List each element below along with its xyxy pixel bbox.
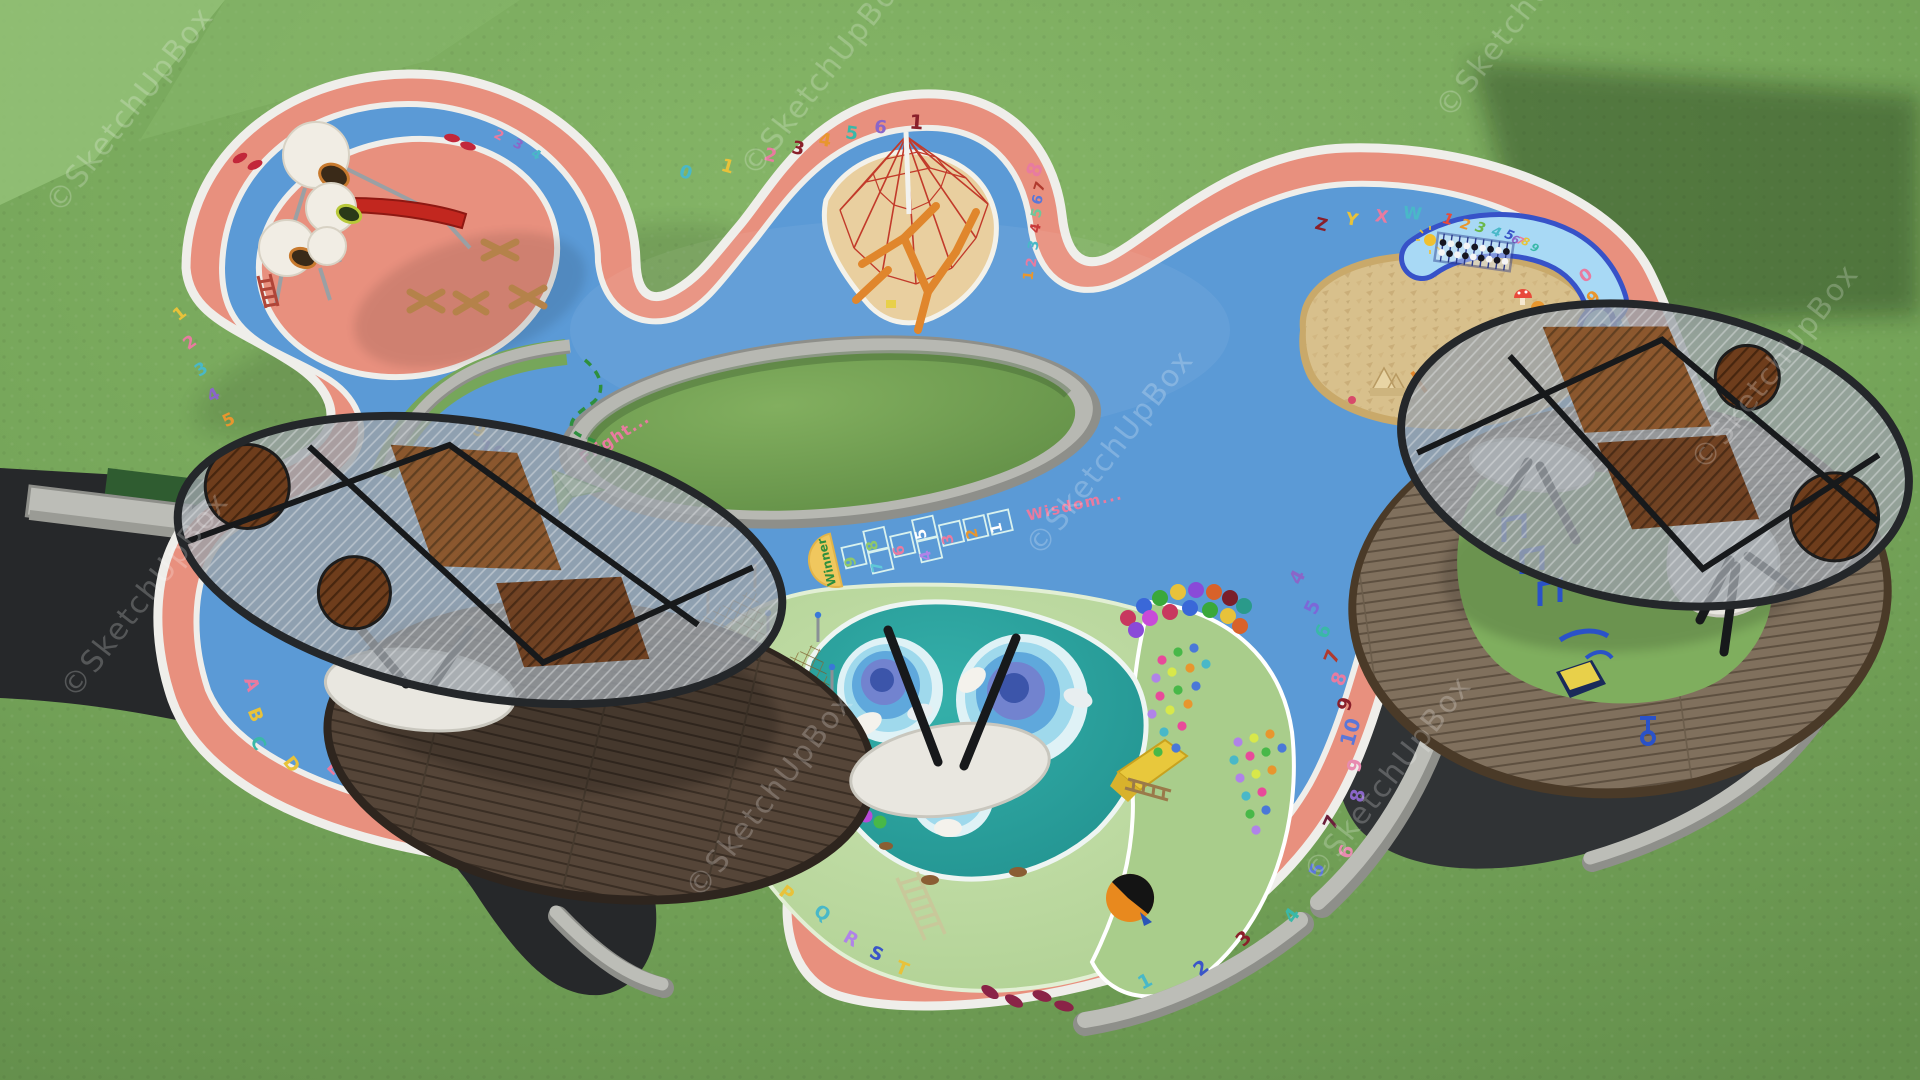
- marking-glyph: 1: [909, 110, 925, 135]
- decor-dot: [1202, 602, 1218, 618]
- decor-dot: [1222, 590, 1238, 606]
- decor-dot: [1241, 791, 1250, 800]
- decor-dot: [1251, 769, 1260, 778]
- decor-dot: [1236, 598, 1252, 614]
- decor-dot: [1191, 681, 1200, 690]
- marking-glyph: 1: [1021, 270, 1038, 281]
- decor-dot: [1233, 737, 1242, 746]
- decor-dot: [1261, 747, 1270, 756]
- decor-dot: [1201, 659, 1210, 668]
- marking-glyph: X: [1374, 206, 1390, 228]
- decor-dot: [1167, 667, 1176, 676]
- decor-dot: [1188, 582, 1204, 598]
- decor-dot: [1249, 733, 1258, 742]
- decor-dot: [1171, 743, 1180, 752]
- decor-dot: [1232, 618, 1248, 634]
- decor-dot: [1183, 699, 1192, 708]
- decor-dot: [1153, 747, 1162, 756]
- decor-dot: [874, 816, 887, 829]
- decor-dot: [829, 664, 835, 670]
- yellow-marker: [886, 300, 896, 308]
- marking-glyph: W: [1402, 203, 1423, 225]
- decor-dot: [1265, 729, 1274, 738]
- decor-dot: [1142, 610, 1158, 626]
- decor-dot: [1155, 691, 1164, 700]
- decor-dot: [1157, 655, 1166, 664]
- decor-dot: [1165, 705, 1174, 714]
- decor-dot: [1173, 685, 1182, 694]
- pod-sphere-4: [308, 227, 346, 265]
- decor-dot: [1151, 673, 1160, 682]
- decor-dot: [1177, 721, 1186, 730]
- decor-dot: [1245, 809, 1254, 818]
- decor-dot: [1277, 743, 1286, 752]
- pyramid-pole: [906, 132, 909, 214]
- decor-dot: [1185, 663, 1194, 672]
- decor-dot: [1159, 727, 1168, 736]
- decor-dot: [1152, 590, 1168, 606]
- decor-dot: [1162, 604, 1178, 620]
- marking-glyph: 6: [873, 116, 888, 138]
- decor-dot: [1173, 647, 1182, 656]
- decor-dot: [1267, 765, 1276, 774]
- decor-dot: [1235, 773, 1244, 782]
- decor-dot: [1229, 755, 1238, 764]
- decor-dot: [1182, 600, 1198, 616]
- playground-render: Flight...: [0, 0, 1920, 1080]
- decor-dot: [1128, 622, 1144, 638]
- decor-dot: [1170, 584, 1186, 600]
- decor-dot: [1147, 709, 1156, 718]
- decor-dot: [815, 612, 821, 618]
- decor-dot: [1251, 825, 1260, 834]
- decor-dot: [1257, 787, 1266, 796]
- decor-dot: [1189, 643, 1198, 652]
- decor-dot: [1206, 584, 1222, 600]
- scene-canvas: Flight...: [0, 0, 1920, 1080]
- decor-dot: [1245, 751, 1254, 760]
- decor-dot: [1261, 805, 1270, 814]
